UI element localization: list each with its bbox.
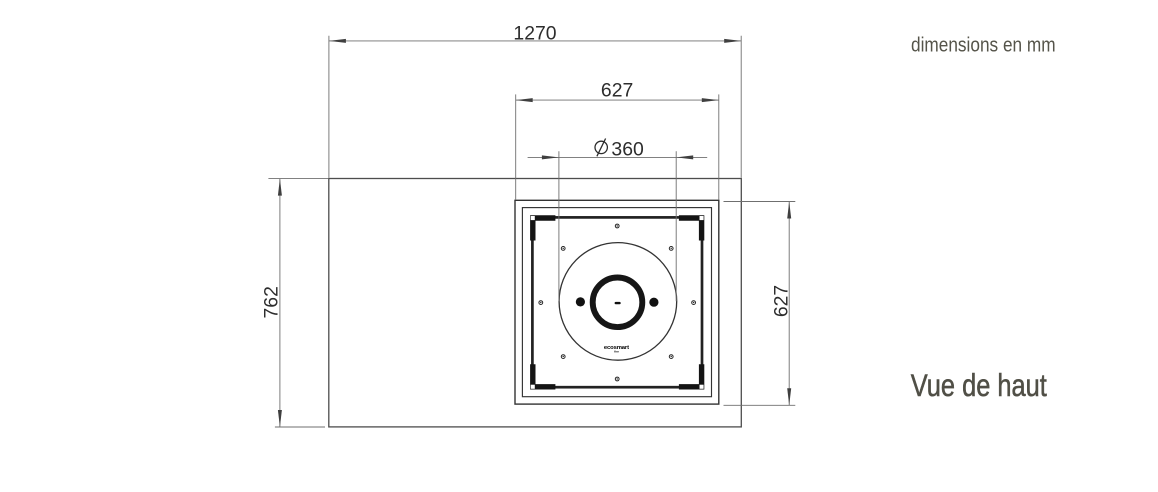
svg-text:Vue de haut: Vue de haut	[911, 367, 1047, 403]
svg-text:762: 762	[261, 286, 283, 318]
svg-text:1270: 1270	[513, 23, 556, 45]
svg-text:fire: fire	[614, 349, 619, 353]
svg-text:627: 627	[771, 285, 793, 317]
svg-text:627: 627	[601, 80, 633, 102]
svg-text:360: 360	[611, 138, 644, 160]
svg-text:dimensions en mm: dimensions en mm	[911, 34, 1056, 57]
